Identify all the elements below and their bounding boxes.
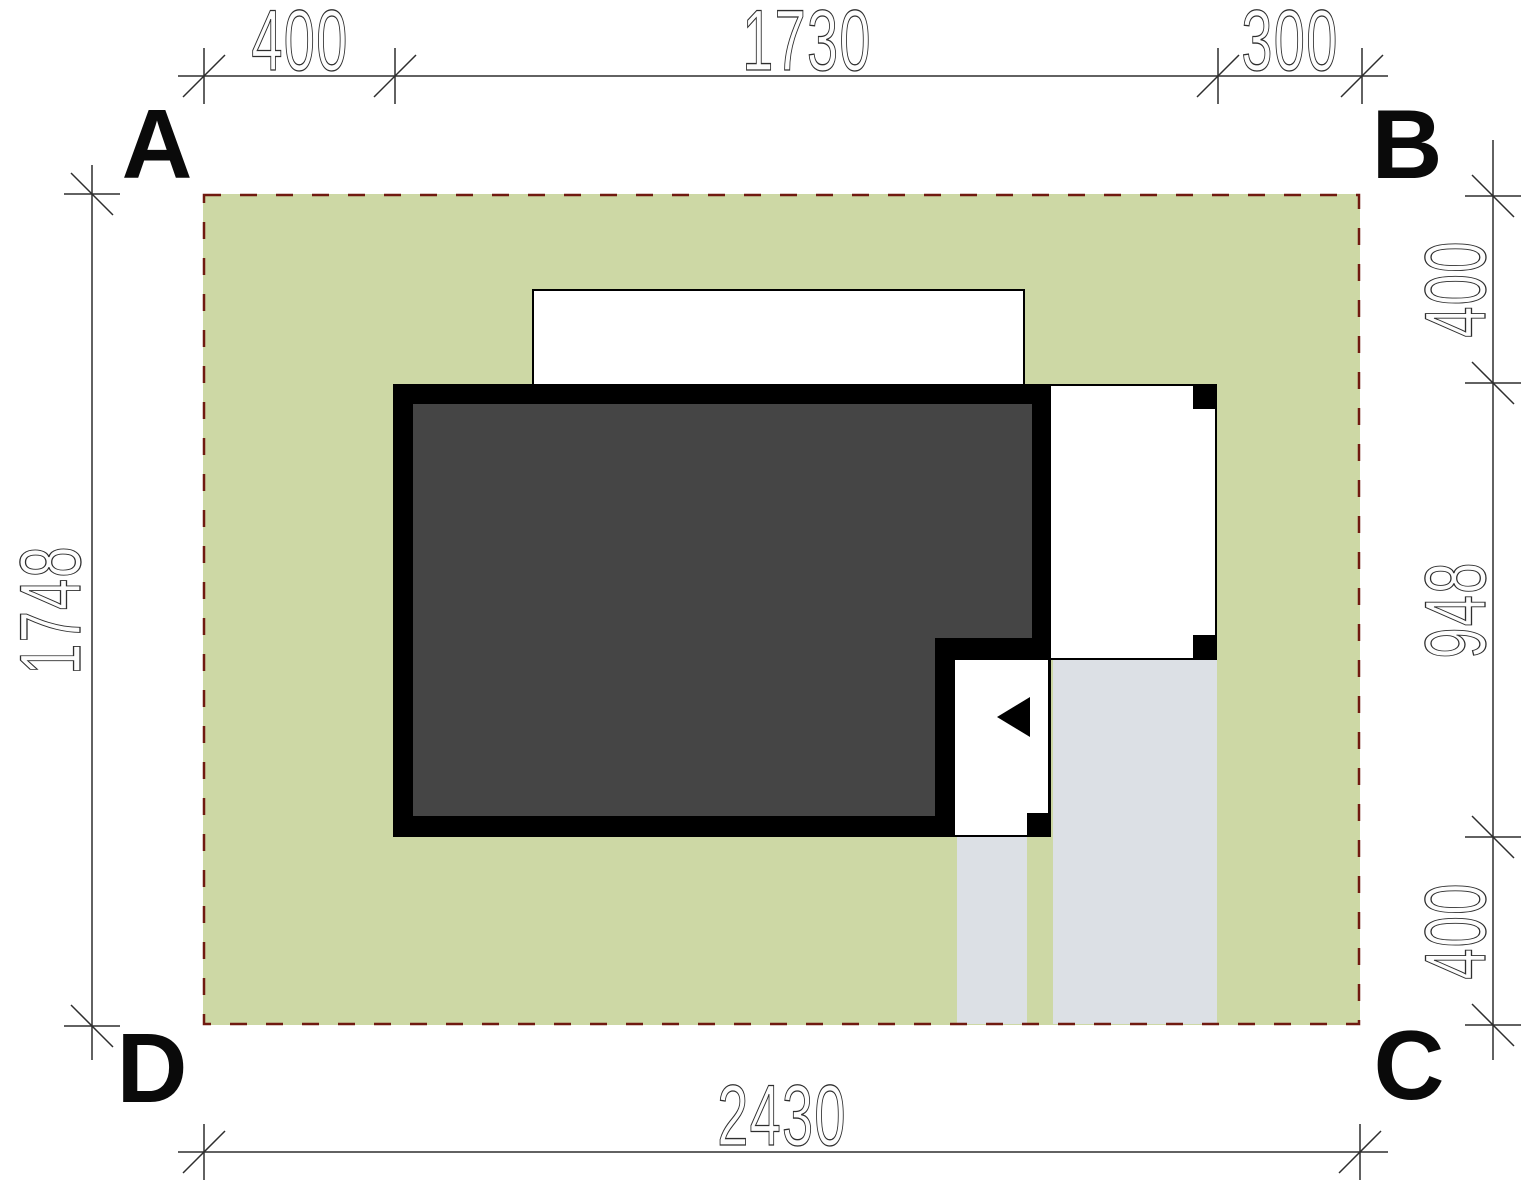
- site-plan-canvas: A B C D 400 1730 300 2430 1748 400 948 4…: [0, 0, 1536, 1194]
- dim-left: 1748: [8, 545, 94, 675]
- side-terrace: [1051, 384, 1217, 660]
- corner-label-a: A: [122, 95, 193, 193]
- dim-right-middle: 948: [1413, 561, 1499, 658]
- dim-bottom: 2430: [717, 1073, 847, 1159]
- building-interior-upper: [413, 404, 1032, 638]
- porch-post-icon: [1027, 813, 1050, 836]
- terrace-post-bottom-icon: [1193, 635, 1216, 658]
- entrance-porch: [955, 660, 1051, 837]
- entrance-arrow-icon: [997, 697, 1030, 737]
- corner-label-b: B: [1372, 95, 1443, 193]
- top-terrace: [532, 289, 1025, 386]
- corner-label-c: C: [1374, 1016, 1445, 1114]
- terrace-post-top-icon: [1193, 386, 1216, 409]
- dim-right-bottom: 400: [1413, 882, 1499, 979]
- dim-top-right: 300: [1241, 0, 1338, 84]
- corner-label-d: D: [117, 1019, 188, 1117]
- dim-top-left: 400: [251, 0, 348, 84]
- building-interior-lower: [413, 638, 935, 816]
- dim-right-top: 400: [1413, 240, 1499, 337]
- dim-top-middle: 1730: [742, 0, 872, 84]
- driveway-paving: [1053, 660, 1217, 1024]
- garden-path-paving: [957, 837, 1027, 1024]
